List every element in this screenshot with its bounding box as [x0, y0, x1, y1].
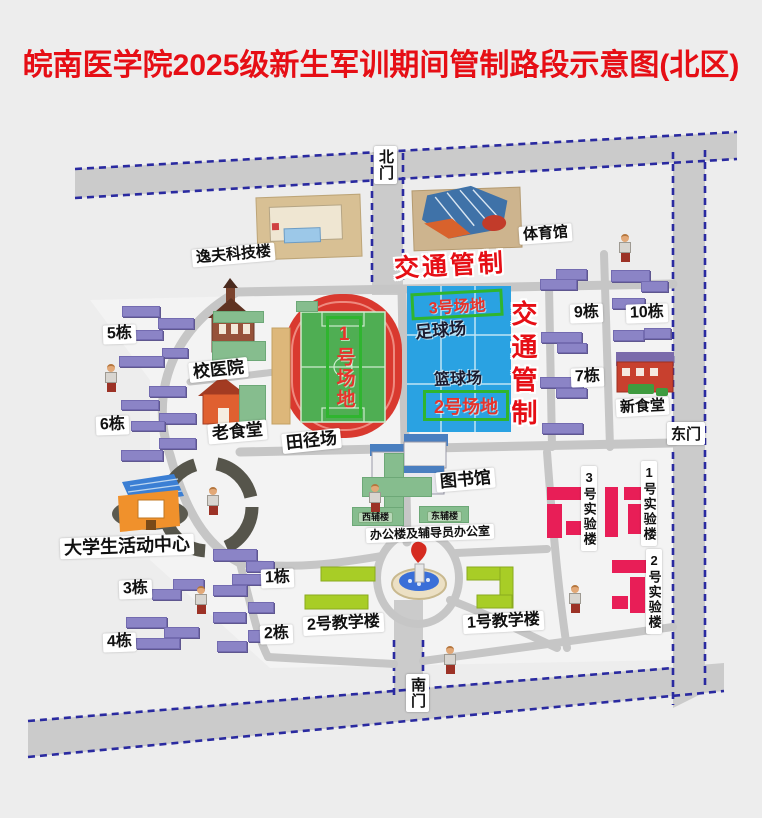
dorm-building-bar [613, 330, 644, 341]
person-legs [197, 605, 206, 614]
traffic-control-vertical: 交通管制 [505, 300, 542, 432]
lawn-patch [239, 385, 266, 424]
label-east-aux-building: 东辅楼 [427, 511, 462, 522]
person-figure [618, 234, 632, 263]
person-figure [104, 364, 118, 393]
label-west-aux-building: 西辅楼 [358, 512, 393, 523]
dorm-building-bar [213, 612, 246, 623]
dorm-building-bar [248, 602, 274, 613]
teaching-building-2-shape [305, 567, 375, 609]
dorm-building-bar [149, 386, 186, 397]
dorm-building-bar [556, 388, 587, 398]
person-torso [619, 242, 631, 253]
label-dorm-4: 4栋 [103, 632, 137, 652]
label-new-canteen: 新食堂 [616, 397, 670, 418]
dorm-building-bar [213, 585, 247, 596]
person-legs [621, 253, 630, 262]
label-dorm-2: 2栋 [260, 624, 294, 644]
label-dorm-7: 7栋 [571, 367, 605, 387]
dorm-building-bar [131, 421, 165, 431]
lawn-patch [213, 311, 264, 323]
dorm-building-bar [542, 423, 583, 434]
label-dorm-10: 10栋 [626, 303, 668, 323]
dorm-building-bar [159, 438, 196, 449]
label-lab-building-3: 3号实验楼 [581, 466, 597, 551]
person-figure [194, 586, 208, 615]
new-canteen-illustration [616, 352, 674, 396]
person-torso [195, 594, 207, 605]
field-1-box: 1号场地 [326, 316, 362, 418]
lab-building-1-shape [605, 487, 644, 537]
dorm-building-bar [557, 343, 587, 353]
south-gate-label: 南门 [406, 674, 429, 712]
fountain-illustration [392, 542, 446, 599]
person-figure [443, 646, 457, 675]
person-legs [571, 604, 580, 613]
campus-map: 北门 东门 南门 交通管制 交通管制 1号场地 3号场地 2号场地 足球场 篮球… [0, 0, 762, 818]
traffic-control-horizontal: 交通管制 [393, 243, 507, 285]
person-head [209, 487, 217, 495]
basketball-court-label: 篮球场 [434, 364, 483, 390]
dorm-building-bar [152, 589, 181, 600]
label-lab-building-1: 1号实验楼 [641, 461, 657, 546]
dorm-building-bar [217, 641, 247, 652]
person-torso [569, 593, 581, 604]
dorm-building-bar [541, 332, 582, 343]
person-legs [371, 503, 380, 512]
label-dorm-5: 5栋 [103, 324, 137, 344]
label-dorm-1: 1栋 [261, 568, 295, 588]
dorm-building-bar [121, 400, 159, 410]
dorm-building-bar [126, 617, 167, 628]
lab-building-3-shape [547, 487, 583, 538]
field-3-box: 3号场地 [410, 289, 503, 321]
person-head [571, 585, 579, 593]
label-dorm-9: 9栋 [570, 303, 604, 323]
dorm-building-bar [641, 281, 668, 292]
person-legs [107, 383, 116, 392]
person-torso [369, 492, 381, 503]
person-head [197, 586, 205, 594]
dorm-building-bar [158, 318, 194, 329]
person-legs [446, 665, 455, 674]
dorm-building-bar [135, 330, 163, 340]
dorm-building-bar [162, 348, 188, 358]
label-dorm-6: 6栋 [96, 415, 130, 435]
person-head [621, 234, 629, 242]
person-torso [105, 372, 117, 383]
label-dorm-3: 3栋 [119, 579, 153, 599]
person-torso [444, 654, 456, 665]
lab-building-2-shape [612, 560, 646, 613]
east-gate-label: 东门 [667, 422, 705, 445]
north-gate-label: 北门 [374, 146, 397, 184]
field-2-box: 2号场地 [423, 390, 509, 421]
person-figure [368, 484, 382, 513]
dorm-building-bar [121, 450, 163, 461]
teaching-building-1-shape [467, 567, 513, 608]
student-activity-center-illustration [118, 474, 184, 532]
person-head [107, 364, 115, 372]
person-head [446, 646, 454, 654]
dorm-building-bar [136, 638, 180, 649]
dorm-building-bar [119, 356, 164, 367]
dorm-building-bar [122, 306, 160, 317]
dorm-building-bar [540, 279, 577, 290]
lawn-patch [296, 301, 318, 312]
person-figure [206, 487, 220, 516]
gymnasium-illustration [412, 184, 522, 251]
person-legs [209, 506, 218, 515]
person-head [371, 484, 379, 492]
person-torso [207, 495, 219, 506]
label-gymnasium: 体育馆 [518, 223, 572, 244]
dorm-building-bar [164, 627, 199, 638]
person-figure [568, 585, 582, 614]
dorm-building-bar [644, 328, 671, 339]
dorm-building-bar [213, 549, 257, 561]
label-lab-building-2: 2号实验楼 [646, 549, 662, 634]
campus-map-page: 皖南医学院2025级新生军训期间管制路段示意图(北区) [0, 0, 762, 818]
